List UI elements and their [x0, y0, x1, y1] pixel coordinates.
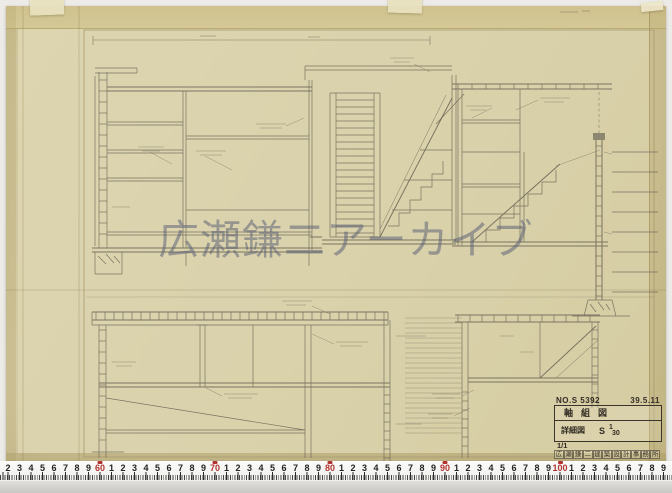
ruler-number: 4 [488, 463, 493, 473]
mounting-tape [30, 0, 65, 16]
ruler-number: 3 [17, 463, 22, 473]
ruler-number: 4 [258, 463, 263, 473]
ruler-number: 2 [120, 463, 125, 473]
ruler-number: 9 [431, 463, 436, 473]
ruler-number: 1 [109, 463, 114, 473]
ruler-decade-number: 100 [552, 463, 567, 473]
ruler-number: 5 [500, 463, 505, 473]
ruler-decade-number: 60 [95, 463, 105, 473]
ruler-number: 1 [454, 463, 459, 473]
office-stamp: 広瀬鎌二建築設計事務所 [554, 450, 660, 459]
stamp-character: 築 [602, 450, 612, 459]
drawing-title: 軸組図 [555, 406, 661, 421]
stamp-character: 設 [612, 450, 622, 459]
ruler-number: 3 [132, 463, 137, 473]
title-block: NO.S 5392 39.5.11 軸組図 詳細図 S 1 30 1/1 広瀬鎌… [554, 396, 662, 460]
stamp-character: 事 [631, 450, 641, 459]
ruler-number: 7 [523, 463, 528, 473]
paper-left-edge [6, 6, 16, 461]
ruler-red-mark [97, 461, 102, 464]
ruler-number: 8 [534, 463, 539, 473]
stamp-character: 広 [554, 450, 564, 459]
ruler-number: 2 [580, 463, 585, 473]
stamp-character: 瀬 [564, 450, 574, 459]
ruler-number: 1 [224, 463, 229, 473]
paper-crease [78, 6, 80, 461]
paper-right-edge [649, 6, 666, 461]
ruler-number: 3 [247, 463, 252, 473]
ruler-area: 2345678960123456789701234567898012345678… [0, 461, 672, 493]
ruler-decade-number: 90 [440, 463, 450, 473]
ruler-number: 7 [63, 463, 68, 473]
ruler-number: 2 [5, 463, 10, 473]
ruler-number: 5 [40, 463, 45, 473]
ruler-number: 1 [339, 463, 344, 473]
ruler-number: 6 [281, 463, 286, 473]
ruler-number: 5 [155, 463, 160, 473]
ruler-number: 8 [189, 463, 194, 473]
ruler-number: 2 [350, 463, 355, 473]
ruler-number: 4 [603, 463, 608, 473]
ruler-number: 8 [74, 463, 79, 473]
ruler-number: 6 [396, 463, 401, 473]
ruler-decade-number: 70 [210, 463, 220, 473]
ruler-number: 6 [626, 463, 631, 473]
ruler-red-mark [327, 461, 332, 464]
ruler-number: 7 [293, 463, 298, 473]
ruler-number: 4 [28, 463, 33, 473]
ruler-number: 9 [316, 463, 321, 473]
drawing-number: NO.S 5392 [556, 396, 600, 405]
ruler-number: 7 [408, 463, 413, 473]
ruler-number: 1 [569, 463, 574, 473]
ruler-number: 5 [270, 463, 275, 473]
measuring-ruler: 2345678960123456789701234567898012345678… [0, 461, 672, 481]
scale-notation: S 1 30 [599, 425, 618, 437]
paper-crease [6, 289, 666, 291]
ruler-number: 4 [373, 463, 378, 473]
mounting-tape [388, 0, 422, 13]
stamp-character: 計 [621, 450, 631, 459]
ruler-number: 3 [592, 463, 597, 473]
sheet-number: 1/1 [557, 442, 567, 450]
ruler-number: 8 [304, 463, 309, 473]
ruler-number: 7 [638, 463, 643, 473]
ruler-number: 6 [51, 463, 56, 473]
ruler-number: 8 [419, 463, 424, 473]
stamp-character: 鎌 [573, 450, 583, 459]
ruler-red-mark [558, 461, 563, 464]
stamp-character: 所 [650, 450, 660, 459]
stamp-character: 二 [583, 450, 593, 459]
stamp-character: 務 [641, 450, 651, 459]
ruler-unit-ticks [0, 472, 672, 480]
ruler-number: 4 [143, 463, 148, 473]
ruler-number: 6 [511, 463, 516, 473]
ruler-number: 5 [385, 463, 390, 473]
ruler-red-mark [212, 461, 217, 464]
ruler-decade-number: 80 [325, 463, 335, 473]
stamp-character: 建 [593, 450, 603, 459]
ruler-number: 3 [477, 463, 482, 473]
archive-watermark: 広瀬鎌二アーカイブ [158, 206, 534, 266]
drawing-date: 39.5.11 [630, 396, 660, 405]
drawing-type-label: 詳細図 [561, 425, 585, 436]
ruler-number: 7 [178, 463, 183, 473]
ruler-number: 9 [86, 463, 91, 473]
ruler-number: 3 [362, 463, 367, 473]
ruler-number: 2 [465, 463, 470, 473]
paper-top-edge [6, 6, 666, 29]
ruler-number: 2 [235, 463, 240, 473]
ruler-number: 9 [546, 463, 551, 473]
table-surface [0, 481, 672, 493]
ruler-number: 5 [615, 463, 620, 473]
ruler-number: 9 [201, 463, 206, 473]
paper-crease [22, 6, 24, 461]
title-block-box: 軸組図 詳細図 S 1 30 [554, 405, 662, 442]
ruler-number: 6 [166, 463, 171, 473]
ruler-number: 9 [661, 463, 666, 473]
ruler-number: 8 [649, 463, 654, 473]
ruler-red-mark [442, 461, 447, 464]
